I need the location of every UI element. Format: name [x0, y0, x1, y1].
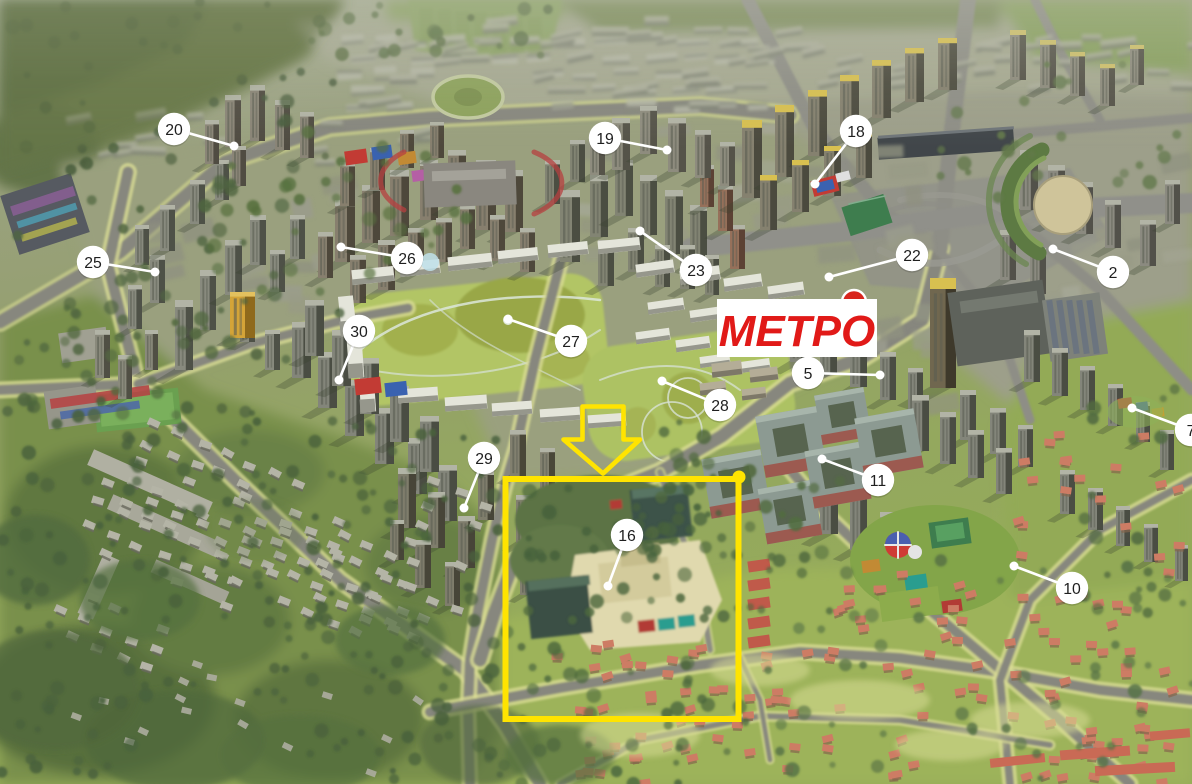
svg-text:10: 10 — [1063, 581, 1081, 598]
svg-text:30: 30 — [350, 324, 368, 341]
svg-text:22: 22 — [903, 248, 921, 265]
svg-text:2: 2 — [1109, 265, 1118, 282]
svg-text:МЕТРО: МЕТРО — [719, 307, 875, 356]
svg-text:11: 11 — [870, 473, 887, 490]
svg-text:27: 27 — [562, 334, 580, 351]
svg-text:18: 18 — [847, 124, 865, 141]
svg-text:29: 29 — [475, 451, 493, 468]
svg-text:28: 28 — [711, 398, 729, 415]
svg-text:26: 26 — [398, 251, 416, 268]
svg-text:16: 16 — [618, 528, 636, 545]
svg-text:25: 25 — [84, 255, 102, 272]
svg-text:7: 7 — [1187, 423, 1192, 440]
svg-text:23: 23 — [687, 263, 705, 280]
svg-text:5: 5 — [804, 366, 813, 383]
svg-text:20: 20 — [165, 122, 183, 139]
svg-text:19: 19 — [596, 131, 614, 148]
